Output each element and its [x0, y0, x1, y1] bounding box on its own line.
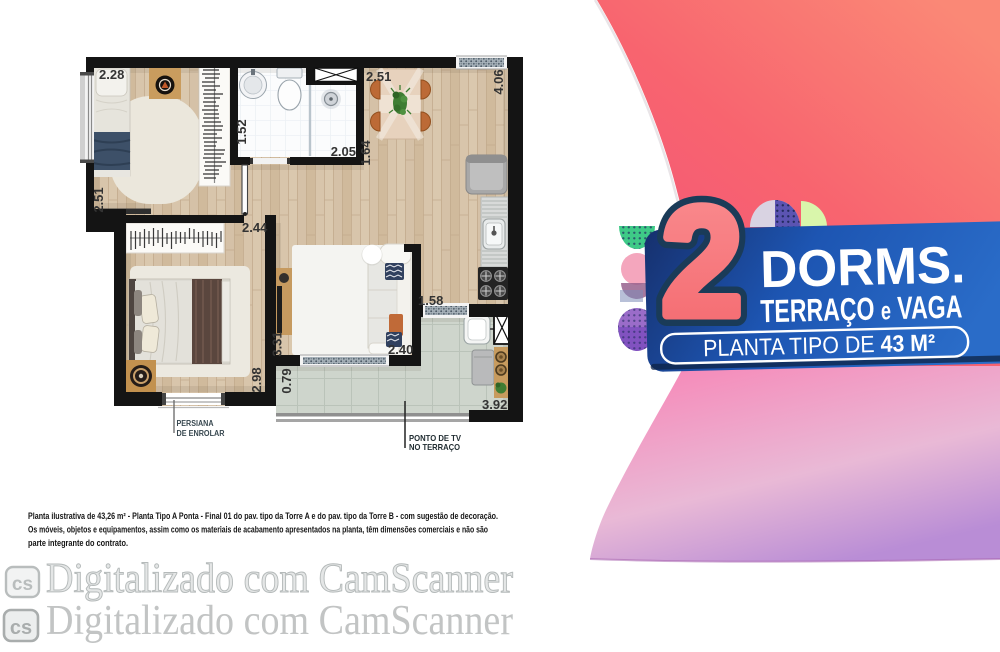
svg-text:Digitalizado com CamScanner: Digitalizado com CamScanner — [46, 598, 513, 644]
svg-text:Os móveis, objetos e equipamen: Os móveis, objetos e equipamentos, assim… — [28, 525, 488, 535]
svg-text:0.79: 0.79 — [279, 368, 294, 393]
svg-text:2.51: 2.51 — [366, 69, 391, 84]
svg-text:2.44: 2.44 — [242, 220, 268, 235]
svg-text:1.52: 1.52 — [234, 119, 249, 144]
svg-text:4.06: 4.06 — [491, 69, 506, 94]
svg-text:cs: cs — [10, 617, 32, 639]
svg-text:parte integrante do contrato.: parte integrante do contrato. — [28, 538, 128, 548]
svg-text:TERRAÇO e VAGA: TERRAÇO e VAGA — [760, 288, 963, 329]
svg-text:2: 2 — [661, 175, 742, 348]
svg-text:1.58: 1.58 — [418, 293, 443, 308]
svg-text:3.31: 3.31 — [270, 331, 285, 356]
svg-text:cs: cs — [12, 574, 33, 595]
svg-text:DE ENROLAR: DE ENROLAR — [177, 429, 225, 438]
svg-text:2.28: 2.28 — [99, 67, 124, 82]
svg-text:2.40: 2.40 — [388, 342, 413, 357]
svg-text:PERSIANA: PERSIANA — [177, 419, 214, 428]
svg-text:3.92: 3.92 — [482, 397, 507, 412]
svg-text:Digitalizado com CamScanner: Digitalizado com CamScanner — [46, 556, 513, 602]
svg-text:2.98: 2.98 — [249, 367, 264, 392]
svg-text:2.51: 2.51 — [91, 187, 106, 212]
svg-text:Planta ilustrativa de 43,26 m²: Planta ilustrativa de 43,26 m² - Planta … — [28, 511, 498, 521]
svg-text:NO TERRAÇO: NO TERRAÇO — [409, 442, 460, 452]
svg-text:1.64: 1.64 — [358, 140, 373, 166]
svg-text:2.05: 2.05 — [331, 144, 356, 159]
